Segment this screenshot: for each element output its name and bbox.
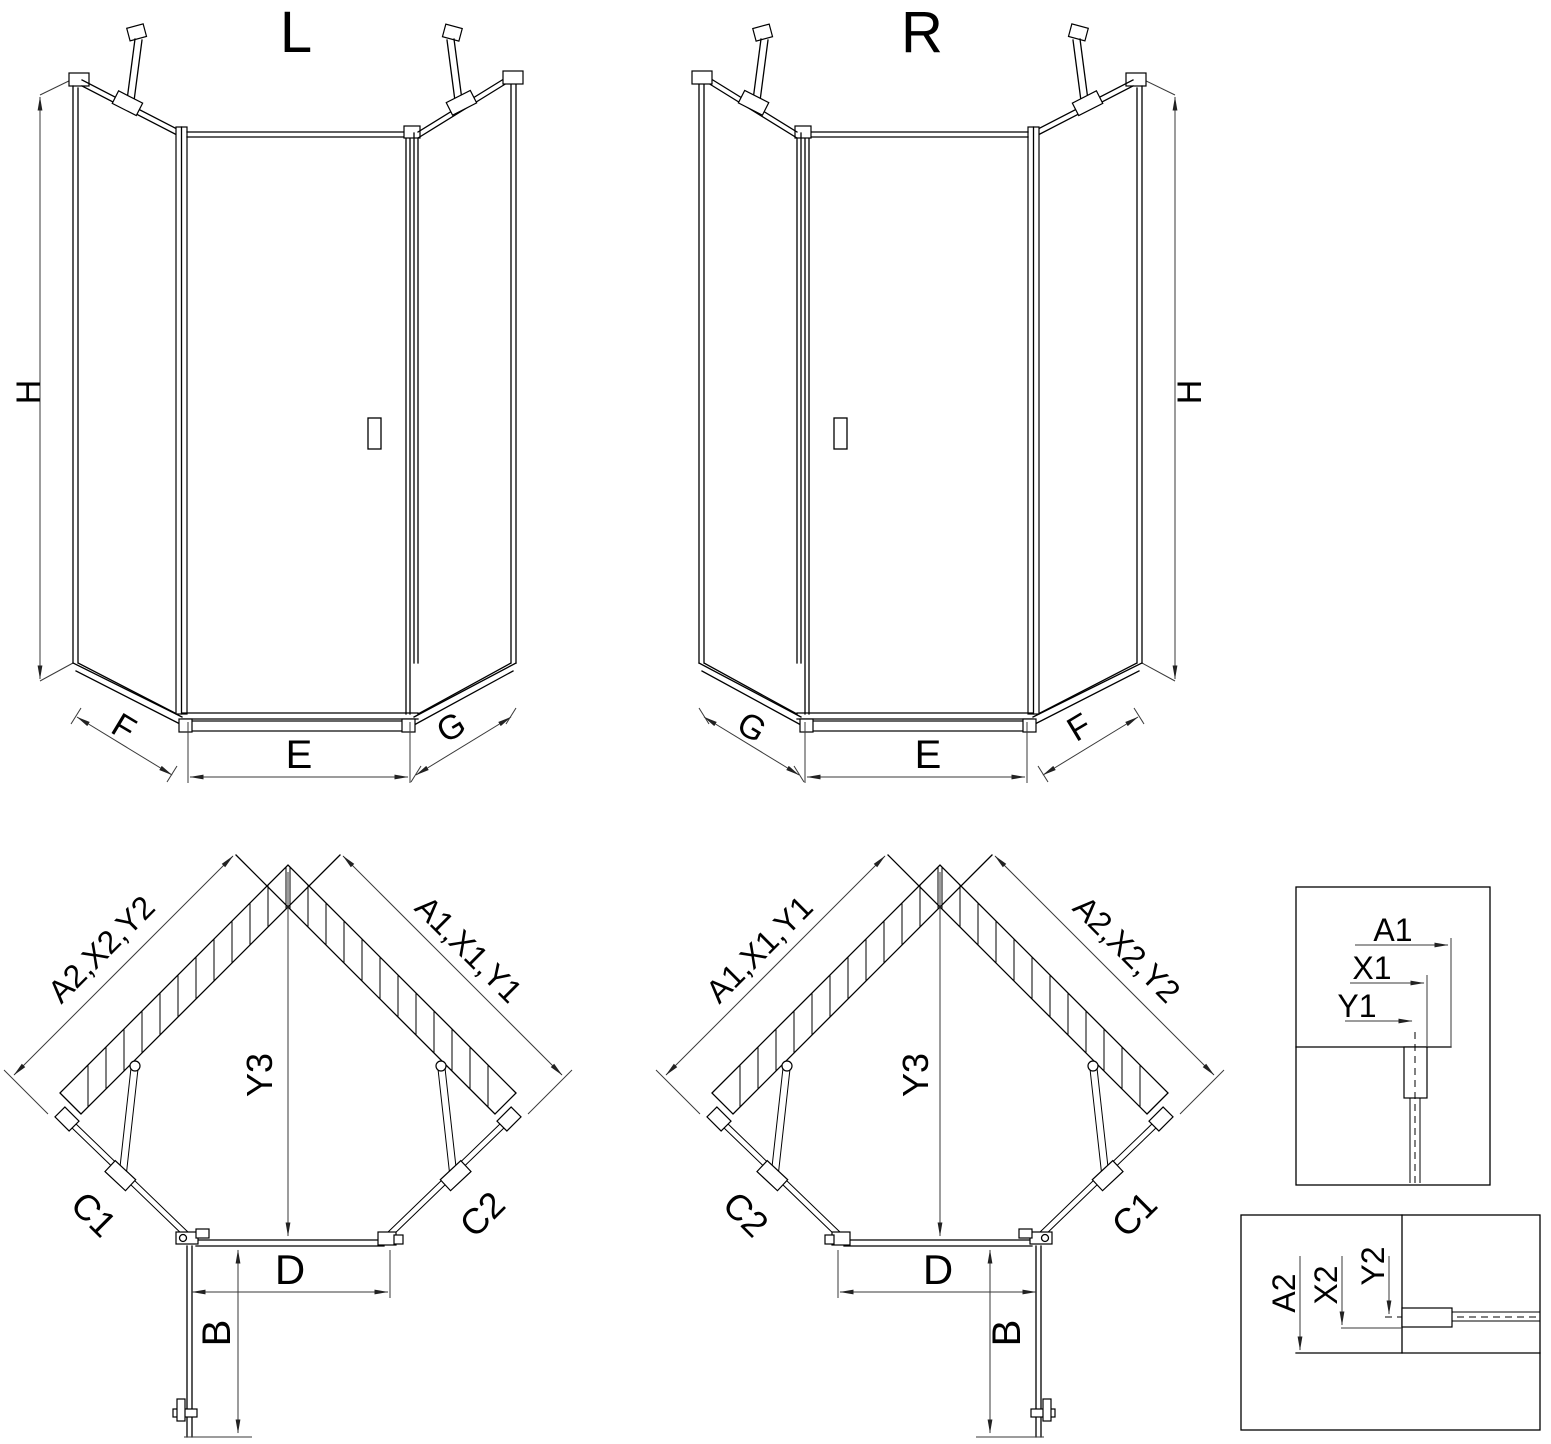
elevation-left: L H F E G [10, 0, 523, 783]
technical-drawing-page: L H F E G R H G E F A2,X2,Y2 A1,X1,Y1 Y3… [0, 0, 1551, 1444]
dim-label-f-right: F [1061, 706, 1098, 749]
dim-label-f-left: F [105, 706, 142, 749]
dim-label-c2-planL: C2 [451, 1183, 513, 1245]
dim-label-y3-planL: Y3 [239, 1053, 280, 1097]
dim-label-h-left: H [10, 380, 48, 405]
elevation-right-geometry [692, 24, 1175, 783]
dim-label-y3-planR: Y3 [895, 1053, 936, 1097]
dim-label-b-planR: B [985, 1320, 1029, 1347]
dim-label-wall-left-planL: A2,X2,Y2 [41, 889, 162, 1010]
dim-label-g-left: G [430, 704, 472, 750]
dim-label-wall-right-planL: A1,X1,Y1 [408, 889, 529, 1010]
variant-label-right: R [901, 0, 943, 65]
dim-label-h-right: H [1171, 380, 1209, 405]
dim-label-c2-planR: C2 [715, 1183, 777, 1245]
dim-label-a1-detail: A1 [1373, 912, 1412, 948]
shower-enclosure-drawing: L H F E G R H G E F A2,X2,Y2 A1,X1,Y1 Y3… [0, 0, 1551, 1444]
dim-label-c1-planL: C1 [63, 1183, 125, 1245]
dim-label-y1-detail: Y1 [1337, 988, 1376, 1024]
dim-label-x2-detail: X2 [1308, 1265, 1344, 1304]
elevation-right: R H G E F [692, 0, 1209, 783]
dim-label-b-planL: B [195, 1320, 239, 1347]
detail-bottom: A2 X2 Y2 [1241, 1215, 1540, 1430]
dim-label-d-planR: D [923, 1246, 953, 1293]
dim-label-e-right: E [915, 733, 942, 777]
variant-label-left: L [280, 0, 312, 65]
dim-label-x1-detail: X1 [1352, 950, 1391, 986]
dim-label-wall-right-planR: A2,X2,Y2 [1066, 889, 1187, 1010]
dim-label-a2-detail: A2 [1266, 1273, 1302, 1312]
plan-right: A1,X1,Y1 A2,X2,Y2 Y3 C2 C1 D B [656, 855, 1224, 1437]
dim-label-d-planL: D [275, 1246, 305, 1293]
detail-top: A1 X1 Y1 [1296, 887, 1490, 1185]
plan-left: A2,X2,Y2 A1,X1,Y1 Y3 C1 C2 D B [4, 855, 572, 1437]
dim-label-c1-planR: C1 [1103, 1183, 1165, 1245]
dim-label-g-right: G [731, 704, 773, 750]
elevation-left-geometry [40, 24, 523, 783]
dim-label-wall-left-planR: A1,X1,Y1 [699, 889, 820, 1010]
dim-label-y2-detail: Y2 [1355, 1246, 1391, 1285]
dim-label-e-left: E [286, 733, 313, 777]
